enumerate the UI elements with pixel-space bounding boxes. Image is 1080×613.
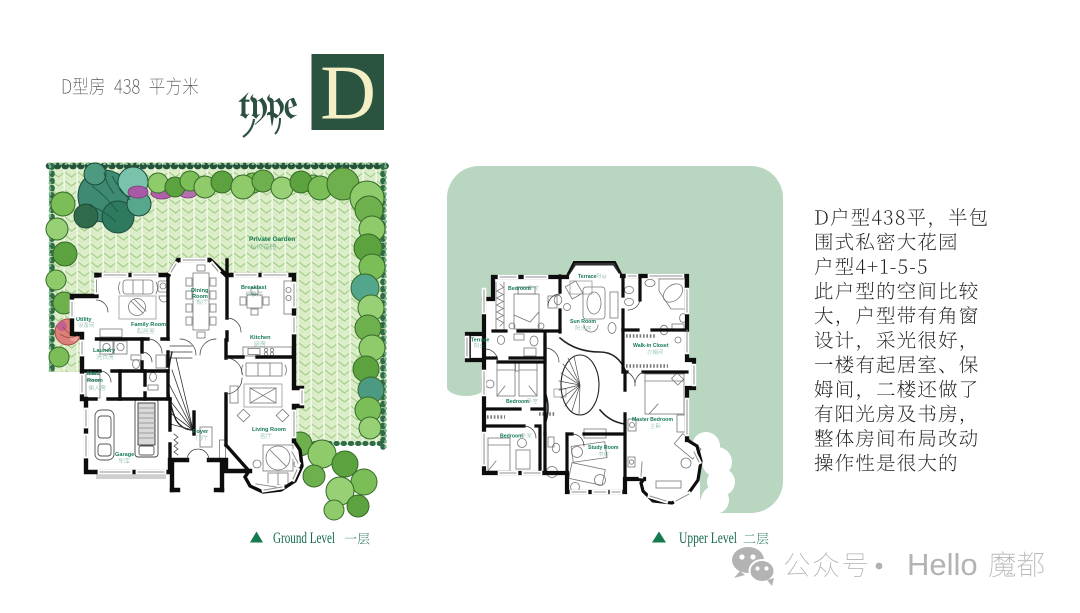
svg-text:Bedroom: Bedroom xyxy=(500,434,523,440)
svg-text:Room: Room xyxy=(87,378,103,384)
svg-text:Maid: Maid xyxy=(87,371,100,377)
svg-text:Kitchen: Kitchen xyxy=(250,335,271,341)
svg-text:Master Bedroom: Master Bedroom xyxy=(632,417,673,423)
svg-text:Hello: Hello xyxy=(907,547,978,582)
svg-text:Family Room: Family Room xyxy=(131,322,166,328)
svg-text:Walk-in Closet: Walk-in Closet xyxy=(633,343,669,349)
svg-text:Foyer: Foyer xyxy=(193,429,209,435)
svg-text:Breakfast: Breakfast xyxy=(241,285,267,291)
svg-text:Study Room: Study Room xyxy=(588,445,619,451)
svg-text:Utility: Utility xyxy=(76,317,92,323)
svg-text:D: D xyxy=(320,50,376,136)
svg-text:Sun Room: Sun Room xyxy=(570,319,596,325)
svg-text:Upper Level: Upper Level xyxy=(679,530,737,547)
svg-text:Terrace: Terrace xyxy=(471,338,489,344)
svg-text:Laundry: Laundry xyxy=(93,348,116,354)
svg-text:Terrace: Terrace xyxy=(578,274,596,280)
svg-text:Living Room: Living Room xyxy=(252,427,286,433)
svg-text:Room: Room xyxy=(192,294,208,300)
svg-text:Bedroom: Bedroom xyxy=(506,399,529,405)
svg-text:Private Garden: Private Garden xyxy=(249,236,295,243)
svg-text:Garage: Garage xyxy=(115,452,134,458)
svg-text:Bedroom: Bedroom xyxy=(508,286,531,292)
svg-text:Ground Level: Ground Level xyxy=(273,530,335,547)
